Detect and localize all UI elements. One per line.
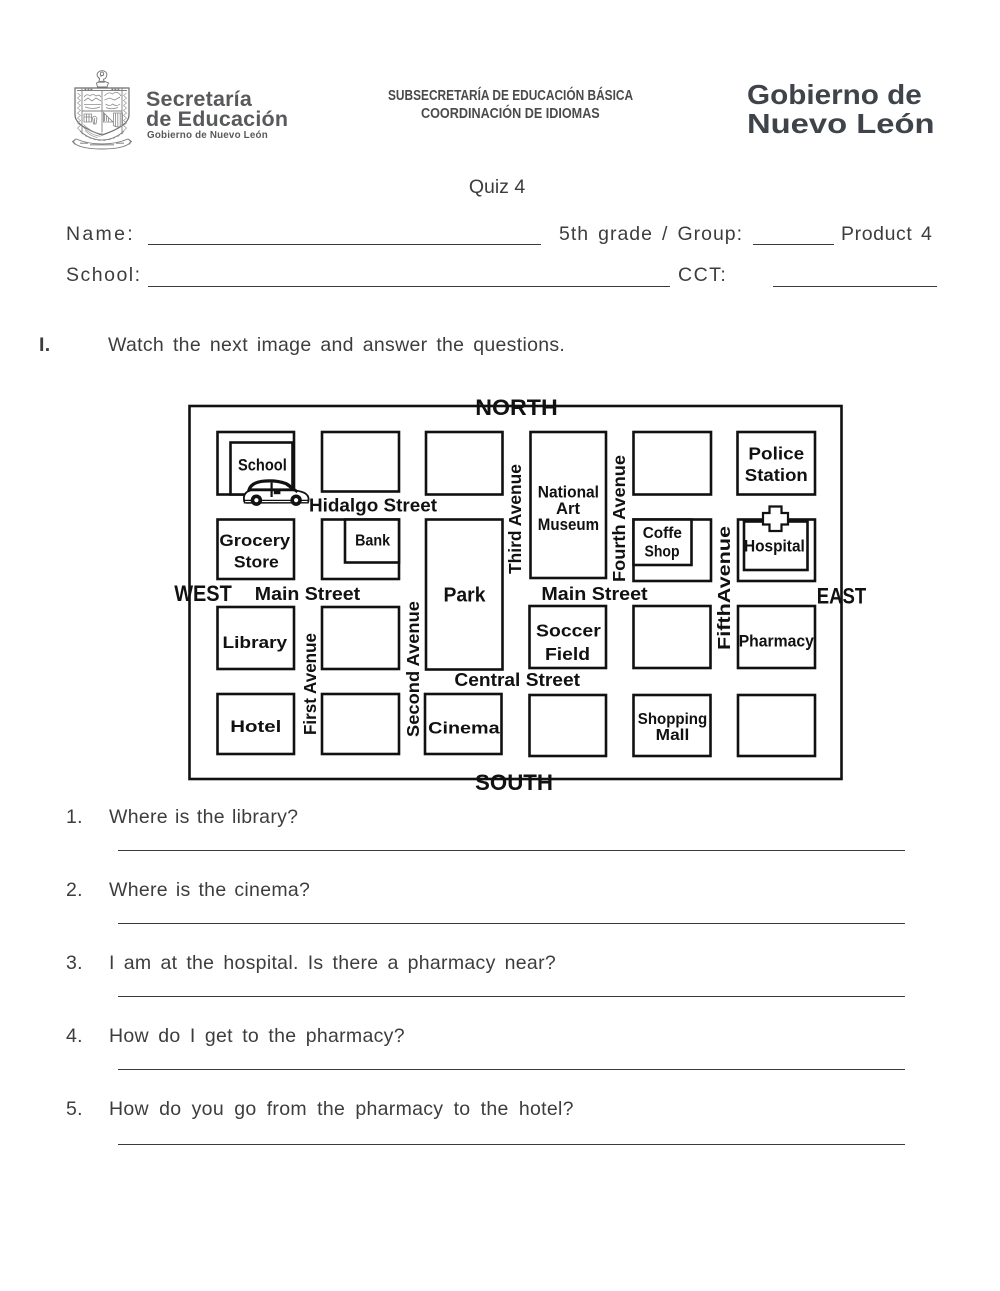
svg-text:Second Avenue: Second Avenue <box>403 601 423 737</box>
svg-text:FifthAvenue: FifthAvenue <box>714 526 734 650</box>
svg-text:Library: Library <box>223 633 288 652</box>
svg-text:Hotel: Hotel <box>230 717 281 736</box>
svg-text:WEST: WEST <box>174 581 232 606</box>
svg-text:Hidalgo Street: Hidalgo Street <box>309 496 437 516</box>
svg-text:Cinema: Cinema <box>428 719 500 738</box>
svg-text:Third Avenue: Third Avenue <box>505 464 525 574</box>
svg-text:Police: Police <box>748 444 804 464</box>
svg-text:Pharmacy: Pharmacy <box>739 632 815 651</box>
svg-text:NORTH: NORTH <box>475 395 558 420</box>
svg-text:Store: Store <box>234 553 279 572</box>
svg-text:Museum: Museum <box>538 515 599 534</box>
svg-text:Main Street: Main Street <box>255 584 360 604</box>
svg-text:Main Street: Main Street <box>541 584 647 604</box>
svg-text:Field: Field <box>545 644 590 664</box>
svg-text:Bank: Bank <box>355 533 390 550</box>
svg-text:Shopping: Shopping <box>638 711 707 728</box>
svg-text:School: School <box>238 456 287 475</box>
svg-text:Soccer: Soccer <box>536 621 601 641</box>
svg-text:Mall: Mall <box>656 727 690 744</box>
svg-text:Park: Park <box>444 585 487 607</box>
svg-text:Coffe: Coffe <box>643 525 683 542</box>
svg-text:Central Street: Central Street <box>454 670 580 690</box>
svg-text:Grocery: Grocery <box>219 531 290 550</box>
svg-text:Station: Station <box>745 465 808 485</box>
svg-text:EAST: EAST <box>817 584 867 609</box>
svg-text:SOUTH: SOUTH <box>475 770 553 795</box>
svg-text:First Avenue: First Avenue <box>300 633 320 735</box>
svg-text:Shop: Shop <box>645 544 680 561</box>
svg-text:Fourth Avenue: Fourth Avenue <box>609 455 629 582</box>
svg-text:Hospital: Hospital <box>744 538 805 556</box>
